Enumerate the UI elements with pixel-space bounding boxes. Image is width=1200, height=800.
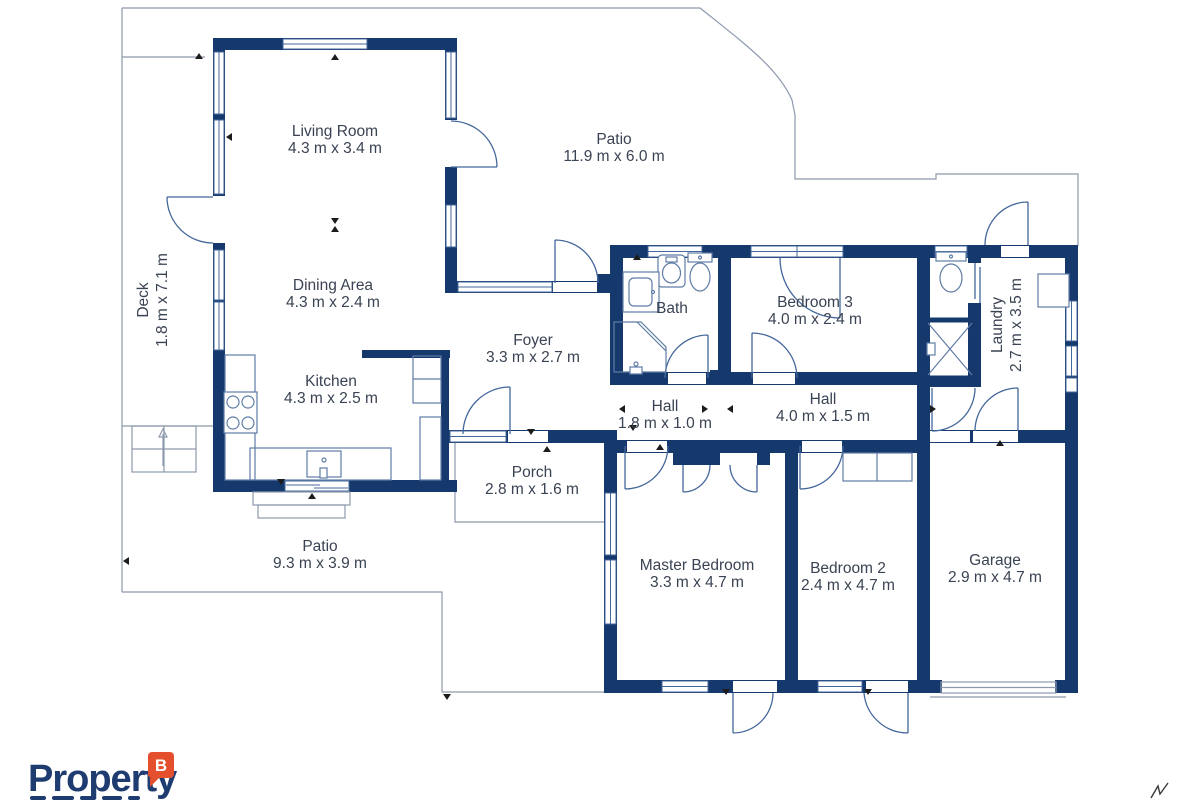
- svg-text:2.9 m x 4.7 m: 2.9 m x 4.7 m: [948, 569, 1042, 586]
- svg-text:Garage: Garage: [969, 552, 1021, 569]
- wc-door: [932, 388, 975, 431]
- room-label-bedroom-2: Bedroom 2 2.4 m x 4.7 m: [801, 560, 895, 594]
- room-label-dining-area: Dining Area 4.3 m x 2.4 m: [286, 277, 380, 311]
- bath-vanity: [623, 272, 659, 312]
- front-door: [463, 387, 510, 434]
- doors: [167, 121, 1028, 733]
- patio-bottom-boundary: [122, 592, 604, 692]
- svg-text:2.7 m x 3.5 m: 2.7 m x 3.5 m: [1008, 278, 1025, 372]
- room-label-patio-bottom: Patio 9.3 m x 3.9 m: [273, 538, 367, 572]
- svg-text:Hall: Hall: [810, 391, 837, 408]
- deck-door: [167, 197, 213, 243]
- svg-text:Bath: Bath: [656, 300, 688, 317]
- bedroom-3-door: [752, 333, 797, 378]
- floor-plan: Living Room 4.3 m x 3.4 m Patio 11.9 m x…: [0, 0, 1200, 800]
- laundry-tub: [1038, 274, 1069, 307]
- svg-text:Patio: Patio: [596, 131, 631, 148]
- room-label-laundry: Laundry 2.7 m x 3.5 m: [989, 278, 1025, 372]
- brand-logo: Property B: [28, 752, 177, 800]
- logo-badge-letter: B: [155, 756, 167, 775]
- bath-toilet: [688, 253, 712, 291]
- svg-text:Living Room: Living Room: [292, 123, 378, 140]
- compass-mark: [1151, 783, 1168, 798]
- svg-text:4.0 m x 1.5 m: 4.0 m x 1.5 m: [776, 408, 870, 425]
- svg-text:3.3 m x 2.7 m: 3.3 m x 2.7 m: [486, 349, 580, 366]
- svg-text:Deck: Deck: [135, 282, 152, 318]
- garage-door: [930, 682, 1066, 697]
- room-label-living-room: Living Room 4.3 m x 3.4 m: [288, 123, 382, 157]
- room-label-porch: Porch 2.8 m x 1.6 m: [485, 464, 579, 498]
- room-label-hall-large: Hall 4.0 m x 1.5 m: [776, 391, 870, 425]
- svg-text:11.9 m x 6.0 m: 11.9 m x 6.0 m: [563, 148, 664, 165]
- laundry-exterior-door: [985, 202, 1028, 245]
- bedroom-2-wardrobe: [843, 453, 912, 481]
- room-label-patio-top: Patio 11.9 m x 6.0 m: [563, 131, 664, 165]
- svg-text:Foyer: Foyer: [513, 332, 553, 349]
- svg-text:Master Bedroom: Master Bedroom: [640, 557, 755, 574]
- svg-text:Hall: Hall: [652, 398, 679, 415]
- kitchen-stove: [224, 392, 257, 433]
- room-label-foyer: Foyer 3.3 m x 2.7 m: [486, 332, 580, 366]
- svg-text:Bedroom 2: Bedroom 2: [810, 560, 886, 577]
- svg-text:Porch: Porch: [512, 464, 553, 481]
- svg-text:4.3 m x 2.4 m: 4.3 m x 2.4 m: [286, 294, 380, 311]
- svg-text:4.3 m x 3.4 m: 4.3 m x 3.4 m: [288, 140, 382, 157]
- room-label-bedroom-3: Bedroom 3 4.0 m x 2.4 m: [768, 294, 862, 328]
- svg-text:9.3 m x 3.9 m: 9.3 m x 3.9 m: [273, 555, 367, 572]
- svg-text:Dining Area: Dining Area: [293, 277, 374, 294]
- porch-steps: [253, 492, 350, 518]
- kitchen-sink: [307, 451, 341, 478]
- svg-text:1.8 m x 1.0 m: 1.8 m x 1.0 m: [618, 415, 712, 432]
- deck-stairs: [132, 426, 196, 472]
- ceiling-marker: [331, 218, 339, 232]
- room-label-hall-small: Hall 1.8 m x 1.0 m: [618, 398, 712, 432]
- room-label-kitchen: Kitchen 4.3 m x 2.5 m: [284, 373, 378, 407]
- master-closet-door-left: [683, 465, 710, 492]
- svg-text:2.8 m x 1.6 m: 2.8 m x 1.6 m: [485, 481, 579, 498]
- garage-hall-door: [975, 388, 1018, 431]
- room-label-bath: Bath: [656, 300, 688, 317]
- svg-text:2.4 m x 4.7 m: 2.4 m x 4.7 m: [801, 577, 895, 594]
- svg-text:4.3 m x 2.5 m: 4.3 m x 2.5 m: [284, 390, 378, 407]
- bedroom-2-exterior-door: [864, 693, 908, 733]
- room-labels: Living Room 4.3 m x 3.4 m Patio 11.9 m x…: [135, 123, 1042, 594]
- wc-toilet: [936, 252, 966, 292]
- svg-text:3.3 m x 4.7 m: 3.3 m x 4.7 m: [650, 574, 744, 591]
- room-label-master-bedroom: Master Bedroom 3.3 m x 4.7 m: [640, 557, 755, 591]
- master-closet-door-right: [730, 465, 757, 492]
- master-exterior-door: [733, 693, 773, 733]
- svg-text:1.8 m x 7.1 m: 1.8 m x 7.1 m: [154, 253, 171, 347]
- foyer-patio-door: [555, 240, 598, 283]
- room-label-deck: Deck 1.8 m x 7.1 m: [135, 253, 171, 347]
- bath-door: [665, 335, 708, 378]
- bath-sink: [658, 255, 685, 287]
- svg-text:Kitchen: Kitchen: [305, 373, 357, 390]
- svg-text:Patio: Patio: [302, 538, 337, 555]
- svg-text:4.0 m x 2.4 m: 4.0 m x 2.4 m: [768, 311, 862, 328]
- svg-text:Laundry: Laundry: [989, 297, 1006, 353]
- room-label-garage: Garage 2.9 m x 4.7 m: [948, 552, 1042, 586]
- svg-text:Bedroom 3: Bedroom 3: [777, 294, 853, 311]
- shower-box: [925, 320, 975, 378]
